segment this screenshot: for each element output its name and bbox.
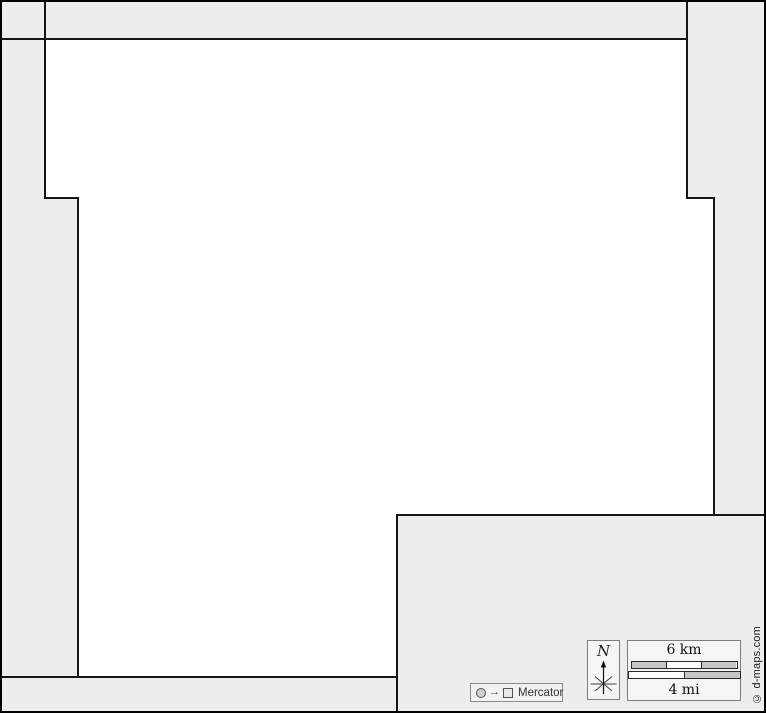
county-outline-map [0,0,766,713]
scale-segment [701,662,736,668]
projection-label: Mercator [518,687,563,699]
scale-bar: 6 km 4 mi [627,640,741,701]
scale-km-label: 6 km [666,642,701,658]
scale-bar-km [631,661,738,669]
scale-segment [632,662,666,668]
globe-circle-icon [476,688,486,698]
projection-badge: → Mercator [470,683,563,702]
scale-bar-mi [628,671,741,679]
north-label: N [597,643,610,660]
scale-segment [629,672,684,678]
scale-segment [684,672,740,678]
compass-rose-icon [588,660,619,698]
map-canvas: N 6 km 4 mi → Mercator © d-maps.com [0,0,766,713]
projection-arrow-icon: → [489,687,500,698]
scale-mi-label: 4 mi [668,682,699,698]
compass-box: N [587,640,620,700]
scale-segment [666,662,701,668]
projected-square-icon [503,688,513,698]
copyright-credit: © d-maps.com [751,626,763,704]
